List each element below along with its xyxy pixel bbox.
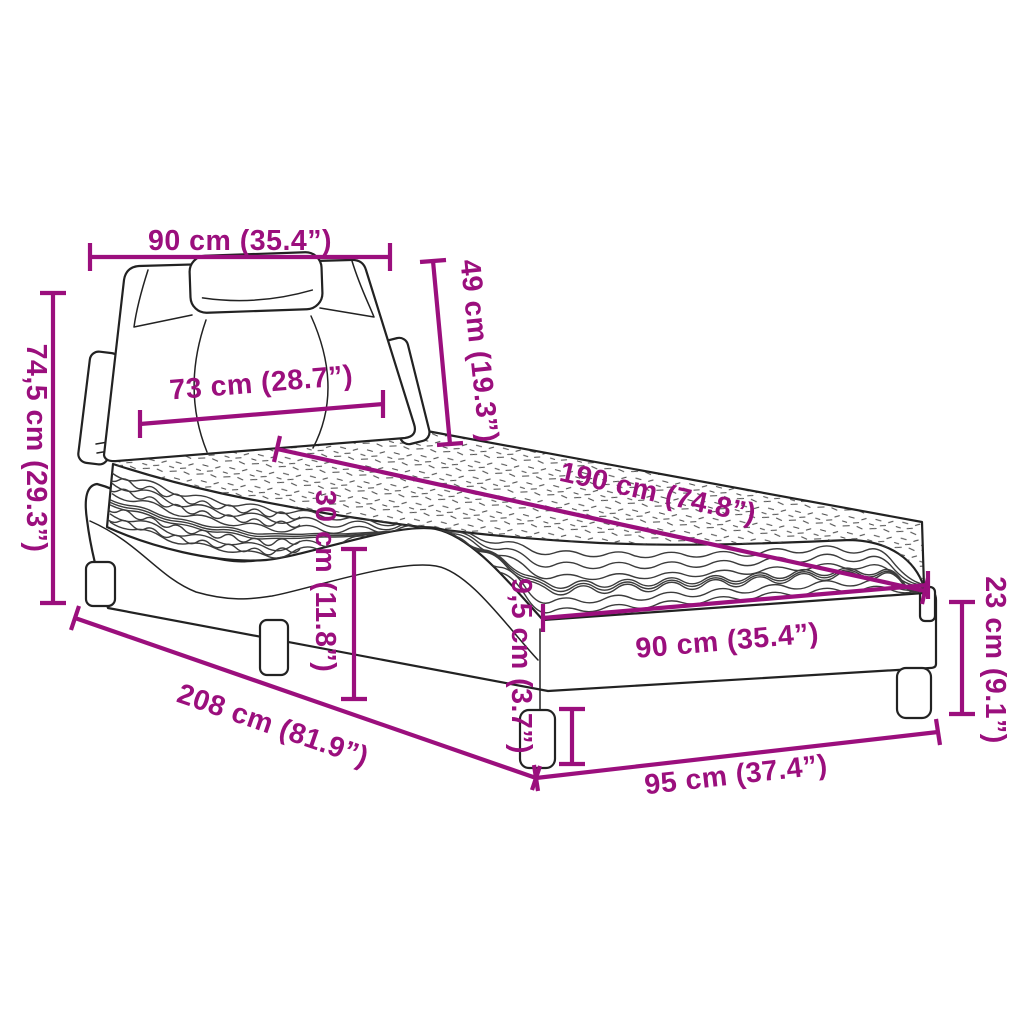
dim-overall-height-label: 74,5 cm (29.3”)	[20, 344, 52, 553]
leg-front-right	[897, 668, 931, 718]
dim-frame-end-height-label: 23 cm (9.1”)	[979, 576, 1011, 744]
dim-headboard-height: 49 cm (19.3”)	[420, 258, 504, 445]
dim-frame-width: 95 cm (37.4”)	[534, 719, 940, 801]
leg-back-left	[86, 562, 115, 606]
dim-platform-height-label: 30 cm (11.8”)	[309, 490, 341, 672]
leg-front-left	[260, 620, 288, 675]
dim-overall-length-label: 208 cm (81.9”)	[173, 678, 373, 774]
headrest-pillow	[189, 252, 323, 314]
dim-headboard-width-label: 90 cm (35.4”)	[148, 225, 332, 257]
dim-headboard-height-label: 49 cm (19.3”)	[453, 258, 504, 444]
headboard	[77, 252, 431, 466]
dimension-diagram: 90 cm (35.4”) 49 cm (19.3”) 74,5 cm (29.…	[0, 0, 1024, 1024]
dim-overall-height: 74,5 cm (29.3”)	[20, 293, 66, 603]
dim-leg-height-label: 9,5 cm (3.7”)	[505, 578, 537, 754]
diagram-canvas: 90 cm (35.4”) 49 cm (19.3”) 74,5 cm (29.…	[0, 0, 1024, 1024]
dim-frame-end-height: 23 cm (9.1”)	[949, 576, 1011, 744]
